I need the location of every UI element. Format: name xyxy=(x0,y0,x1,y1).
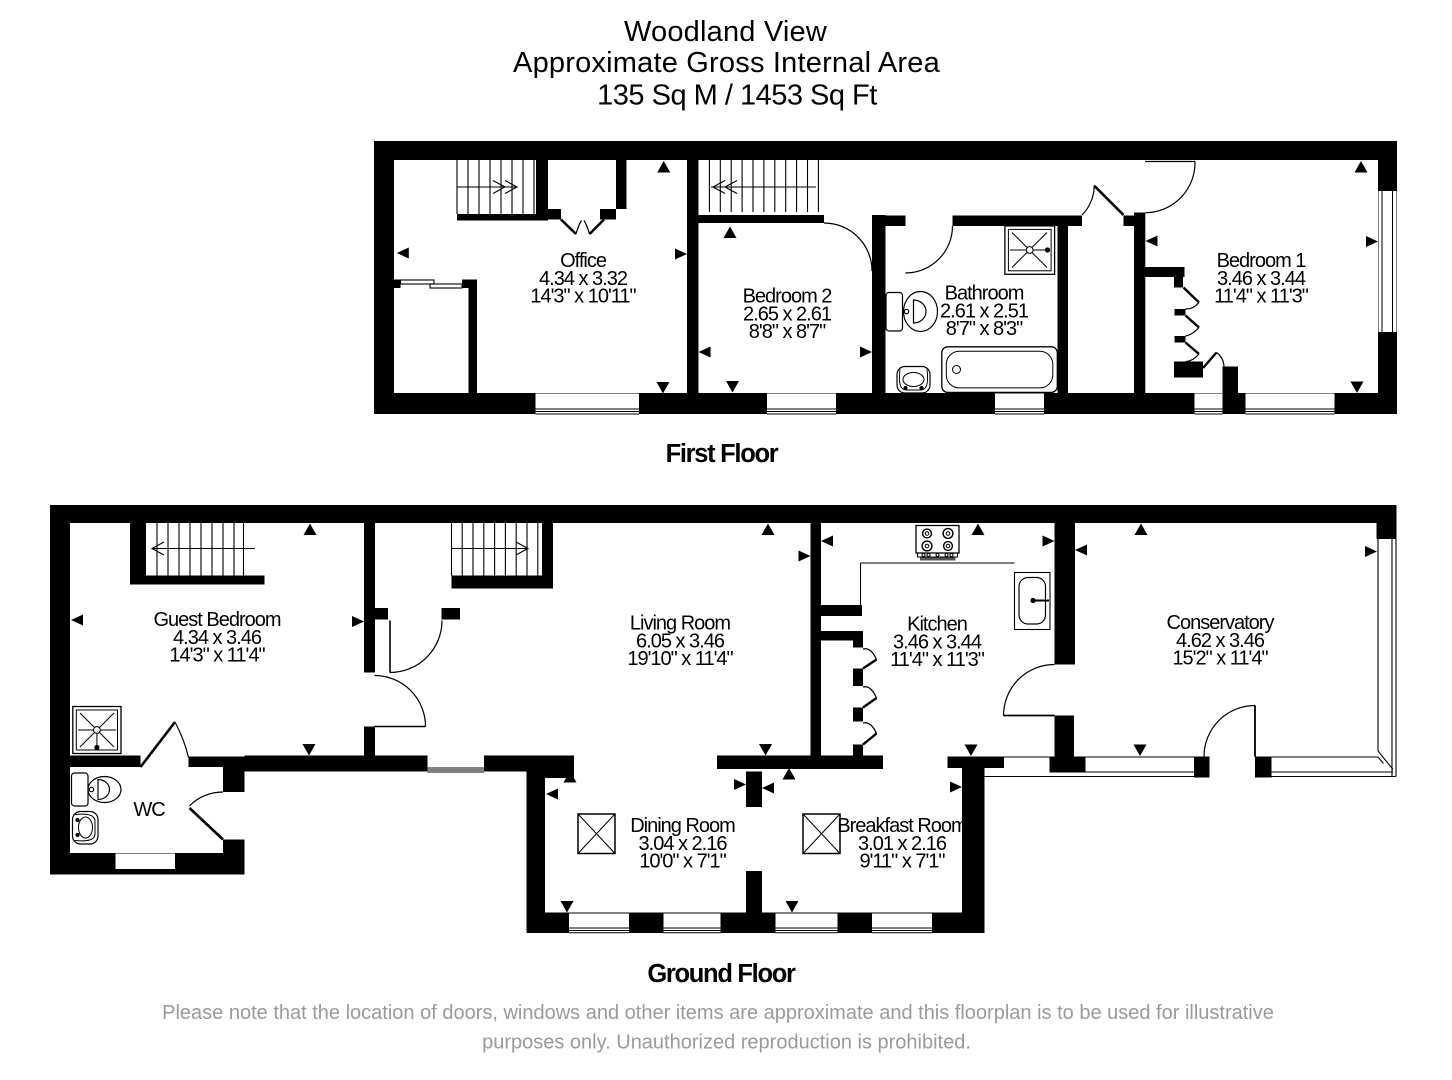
svg-text:Please note that the location: Please note that the location of doors, … xyxy=(162,1002,1274,1024)
svg-text:purposes only. Unauthorized re: purposes only. Unauthorized reproduction… xyxy=(482,1032,971,1054)
svg-text:11'4" x 11'3": 11'4" x 11'3" xyxy=(1214,286,1309,308)
svg-text:10'0" x 7'1": 10'0" x 7'1" xyxy=(639,851,726,873)
svg-text:14'3" x 11'4": 14'3" x 11'4" xyxy=(169,645,265,667)
svg-text:Woodland View: Woodland View xyxy=(624,16,828,48)
svg-text:9'11" x 7'1": 9'11" x 7'1" xyxy=(859,851,945,873)
svg-text:Approximate Gross Internal Are: Approximate Gross Internal Area xyxy=(513,47,941,79)
svg-text:11'4" x 11'3": 11'4" x 11'3" xyxy=(890,649,985,671)
svg-text:8'8" x 8'7": 8'8" x 8'7" xyxy=(749,321,826,343)
svg-text:8'7" x 8'3": 8'7" x 8'3" xyxy=(946,318,1023,340)
svg-text:15'2" x 11'4": 15'2" x 11'4" xyxy=(1172,648,1268,670)
svg-text:Ground Floor: Ground Floor xyxy=(647,960,796,988)
svg-text:135 Sq M / 1453 Sq Ft: 135 Sq M / 1453 Sq Ft xyxy=(597,80,877,112)
svg-text:14'3" x 10'11": 14'3" x 10'11" xyxy=(530,286,636,308)
svg-text:19'10" x 11'4": 19'10" x 11'4" xyxy=(627,648,733,670)
svg-text:WC: WC xyxy=(133,799,165,821)
svg-text:First Floor: First Floor xyxy=(666,440,779,468)
